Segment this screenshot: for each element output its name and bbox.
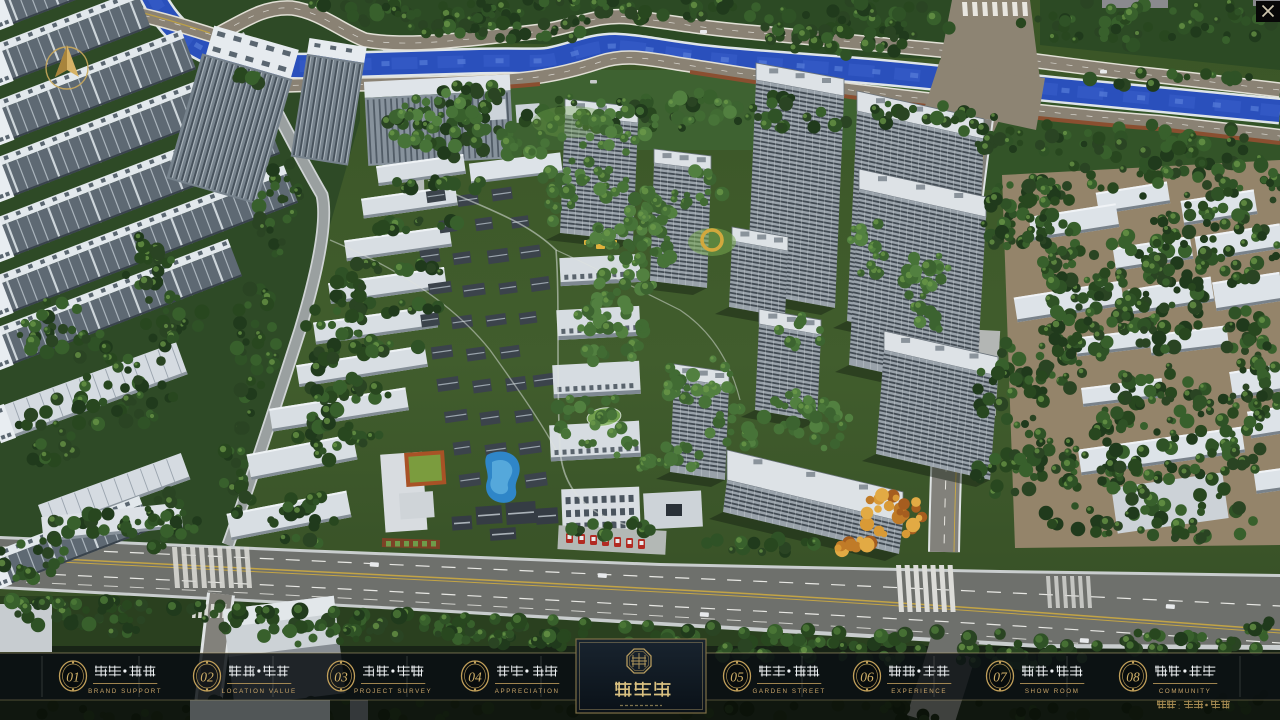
svg-text:EXPERIENCE: EXPERIENCE xyxy=(891,688,947,695)
svg-text:01: 01 xyxy=(66,670,80,685)
svg-text:06: 06 xyxy=(860,670,874,685)
svg-text:APPRECIATION: APPRECIATION xyxy=(495,688,560,695)
svg-text:PROJECT SURVEY: PROJECT SURVEY xyxy=(354,688,432,695)
svg-text:COMMUNITY: COMMUNITY xyxy=(1159,688,1212,695)
svg-text:LOCATION VALUE: LOCATION VALUE xyxy=(222,688,297,695)
svg-text:08: 08 xyxy=(1126,670,1140,685)
svg-text::: : xyxy=(1178,702,1180,711)
svg-text:04: 04 xyxy=(468,670,482,685)
svg-text:GARDEN STREET: GARDEN STREET xyxy=(752,688,825,695)
svg-text:07: 07 xyxy=(993,670,1008,685)
svg-text:SHOW ROOM: SHOW ROOM xyxy=(1025,688,1080,695)
svg-text:BRAND SUPPORT: BRAND SUPPORT xyxy=(88,688,162,695)
svg-text:03: 03 xyxy=(334,670,348,685)
svg-text:02: 02 xyxy=(200,670,214,685)
svg-text:05: 05 xyxy=(730,670,744,685)
